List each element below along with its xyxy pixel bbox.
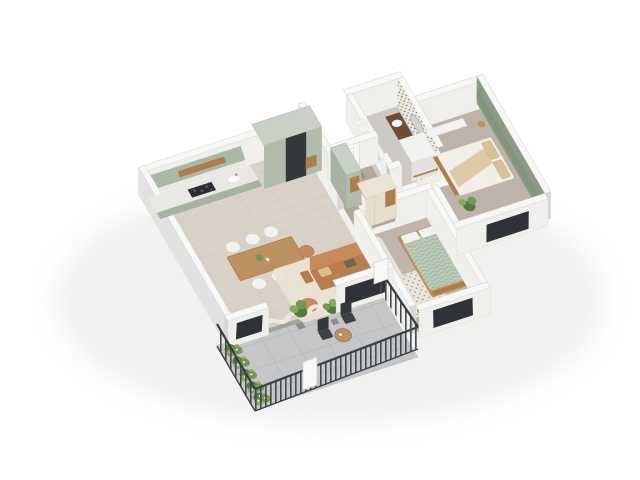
floor-plan-stage: [0, 0, 640, 480]
floor-plan-render: [0, 0, 640, 480]
railing-post: [303, 357, 317, 390]
railing-post: [374, 258, 388, 284]
